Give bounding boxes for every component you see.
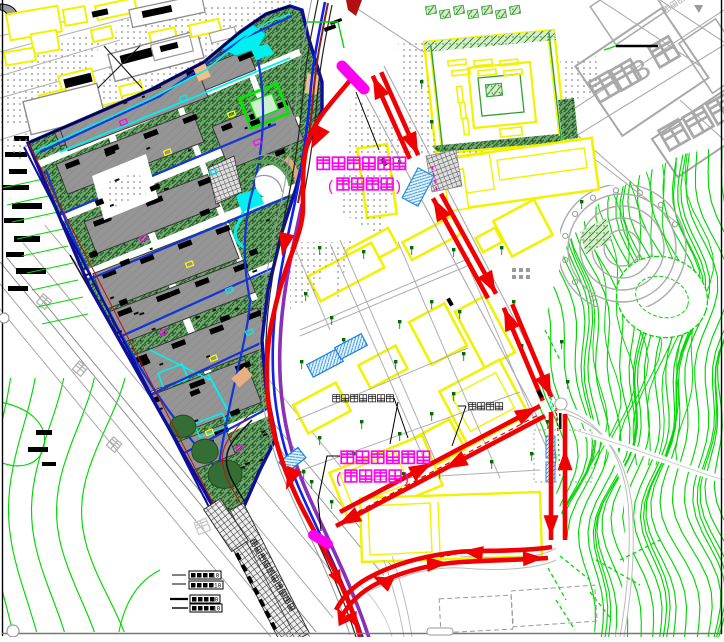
svg-text:10: 10	[211, 597, 219, 604]
svg-text:): )	[404, 470, 409, 487]
svg-text:): )	[396, 178, 401, 195]
svg-text:10: 10	[214, 583, 222, 590]
svg-text:(: (	[336, 470, 341, 487]
svg-text:10: 10	[212, 573, 220, 580]
svg-text:(: (	[328, 178, 333, 195]
svg-text:10: 10	[213, 606, 221, 613]
